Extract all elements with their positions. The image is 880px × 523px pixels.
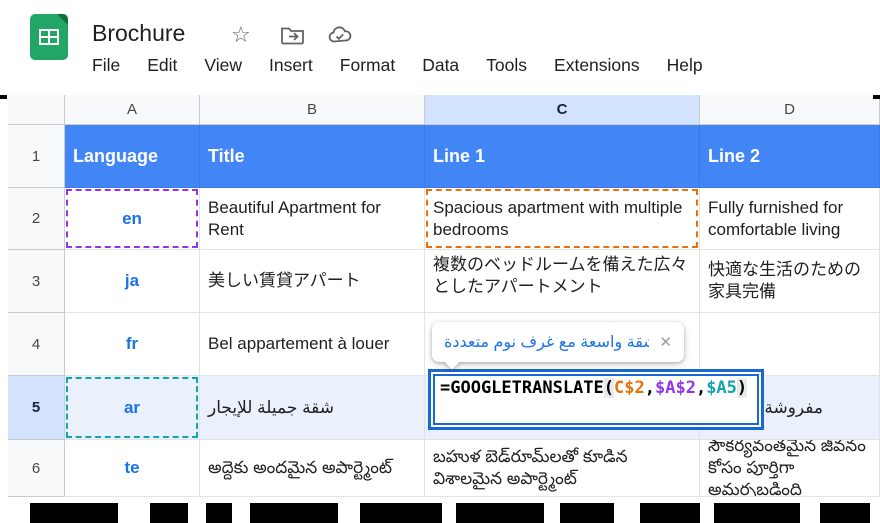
tooltip-result-text: شقة واسعة مع غرف نوم متعددة [444,332,649,352]
redaction-mark [0,95,7,99]
document-title[interactable]: Brochure [92,20,185,47]
cell-B4[interactable]: Bel appartement à louer [200,313,425,376]
redaction-mark [560,503,614,523]
move-folder-icon[interactable] [280,24,306,51]
cell-editor-C5[interactable]: =GOOGLETRANSLATE(C$2,$A$2,$A5) [428,369,764,430]
redaction-mark [714,503,800,523]
column-header-D[interactable]: D [700,95,880,125]
menu-item-edit[interactable]: Edit [147,55,177,76]
row-header-1[interactable]: 1 [8,125,65,188]
cell-A5[interactable]: ar [65,376,200,440]
formula-preview-tooltip: شقة واسعة مع غرف نوم متعددة ✕ [432,322,684,362]
select-all-corner[interactable] [8,95,65,125]
formula-text[interactable]: =GOOGLETRANSLATE(C$2,$A$2,$A5) [440,378,752,398]
menu-bar: File Edit View Insert Format Data Tools … [92,55,703,76]
menu-item-format[interactable]: Format [340,55,395,76]
formula-ref-A2: $A$2 [655,378,696,398]
menu-item-insert[interactable]: Insert [269,55,313,76]
cell-B5[interactable]: شقة جميلة للإيجار [200,376,425,440]
cell-B1[interactable]: Title [200,125,425,188]
formula-comma-1: , [645,378,655,398]
cell-D4[interactable] [700,313,880,376]
cell-C1[interactable]: Line 1 [425,125,700,188]
logo-table-glyph [39,29,59,45]
lang-code-ar: ar [124,397,140,419]
redaction-mark [30,503,118,523]
cell-C3[interactable]: 複数のベッドルームを備えた広々としたアパートメント [425,250,700,313]
cell-A4[interactable]: fr [65,313,200,376]
redaction-mark [150,503,188,523]
star-icon[interactable]: ☆ [231,24,251,46]
redaction-mark [873,95,880,99]
cell-editor-inner: =GOOGLETRANSLATE(C$2,$A$2,$A5) [433,374,759,425]
formula-function-token: =GOOGLETRANSLATE [440,378,604,398]
lang-code-en: en [122,208,142,230]
redaction-mark [360,503,442,523]
row-header-4[interactable]: 4 [8,313,65,376]
formula-ref-A5: $A5 [706,378,737,398]
menu-item-file[interactable]: File [92,55,120,76]
row-header-6[interactable]: 6 [8,440,65,497]
cell-C6[interactable]: బహుళ బెడ్‌రూమ్‌లతో కూడిన విశాలమైన అపార్ట… [425,440,700,497]
logo-fold [57,14,68,25]
cell-B5-text: شقة جميلة للإيجار [208,397,334,419]
cell-D3[interactable]: 快適な生活のための家具完備 [700,250,880,313]
cell-A6[interactable]: te [65,440,200,497]
close-icon[interactable]: ✕ [659,333,672,351]
cell-A3[interactable]: ja [65,250,200,313]
cell-C2-text: Spacious apartment with multiple bedroom… [433,197,691,241]
formula-comma-2: , [696,378,706,398]
row-header-2[interactable]: 2 [8,188,65,250]
column-header-A[interactable]: A [65,95,200,125]
redaction-mark [640,503,700,523]
cell-D1[interactable]: Line 2 [700,125,880,188]
menu-item-data[interactable]: Data [422,55,459,76]
menu-item-extensions[interactable]: Extensions [554,55,640,76]
sheets-logo-icon[interactable] [30,14,68,60]
formula-open-paren: ( [604,378,614,398]
redaction-mark [456,503,544,523]
row-header-5[interactable]: 5 [8,376,65,440]
cell-B2[interactable]: Beautiful Apartment for Rent [200,188,425,250]
formula-ref-C2: C$2 [614,378,645,398]
redaction-mark [820,503,870,523]
formula-close-paren: ) [737,378,747,398]
cloud-check-icon[interactable] [327,24,353,51]
cell-D2[interactable]: Fully furnished for comfortable living [700,188,880,250]
cell-D6[interactable]: సౌకర్యవంతమైన జీవనం కోసం పూర్తిగా అమర్చబడ… [700,440,880,497]
cell-A2[interactable]: en [65,188,200,250]
redaction-mark [206,503,232,523]
cell-A1[interactable]: Language [65,125,200,188]
column-header-C[interactable]: C [425,95,700,125]
cell-B6[interactable]: అద్దెకు అందమైన అపార్ట్మెంట్ [200,440,425,497]
cell-B3[interactable]: 美しい賃貸アパート [200,250,425,313]
redaction-mark [250,503,338,523]
cell-C2[interactable]: Spacious apartment with multiple bedroom… [425,188,700,250]
column-header-B[interactable]: B [200,95,425,125]
menu-item-view[interactable]: View [204,55,242,76]
menu-item-help[interactable]: Help [667,55,703,76]
menu-item-tools[interactable]: Tools [486,55,527,76]
row-header-3[interactable]: 3 [8,250,65,313]
